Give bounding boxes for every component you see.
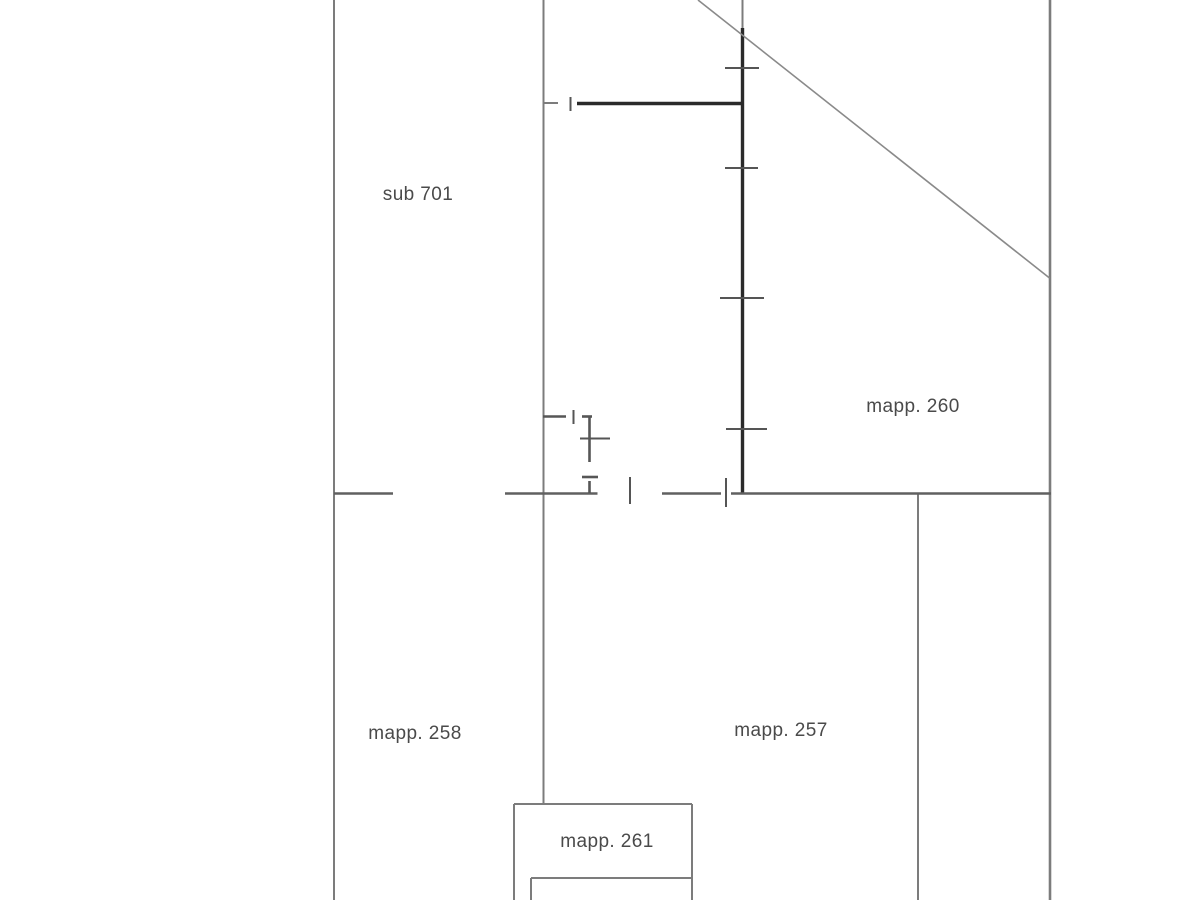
parcel-label-sub-701: sub 701: [383, 184, 453, 206]
plan-linework: [0, 0, 1200, 900]
floor-plan-canvas: sub 701 mapp. 260 mapp. 258 mapp. 257 ma…: [0, 0, 1200, 900]
parcel-label-mapp-257: mapp. 257: [734, 720, 827, 742]
diagonal-boundary-line: [698, 0, 1050, 278]
parcel-label-mapp-260: mapp. 260: [866, 396, 959, 418]
parcel-label-mapp-258: mapp. 258: [368, 723, 461, 745]
parcel-label-mapp-261: mapp. 261: [560, 831, 653, 853]
